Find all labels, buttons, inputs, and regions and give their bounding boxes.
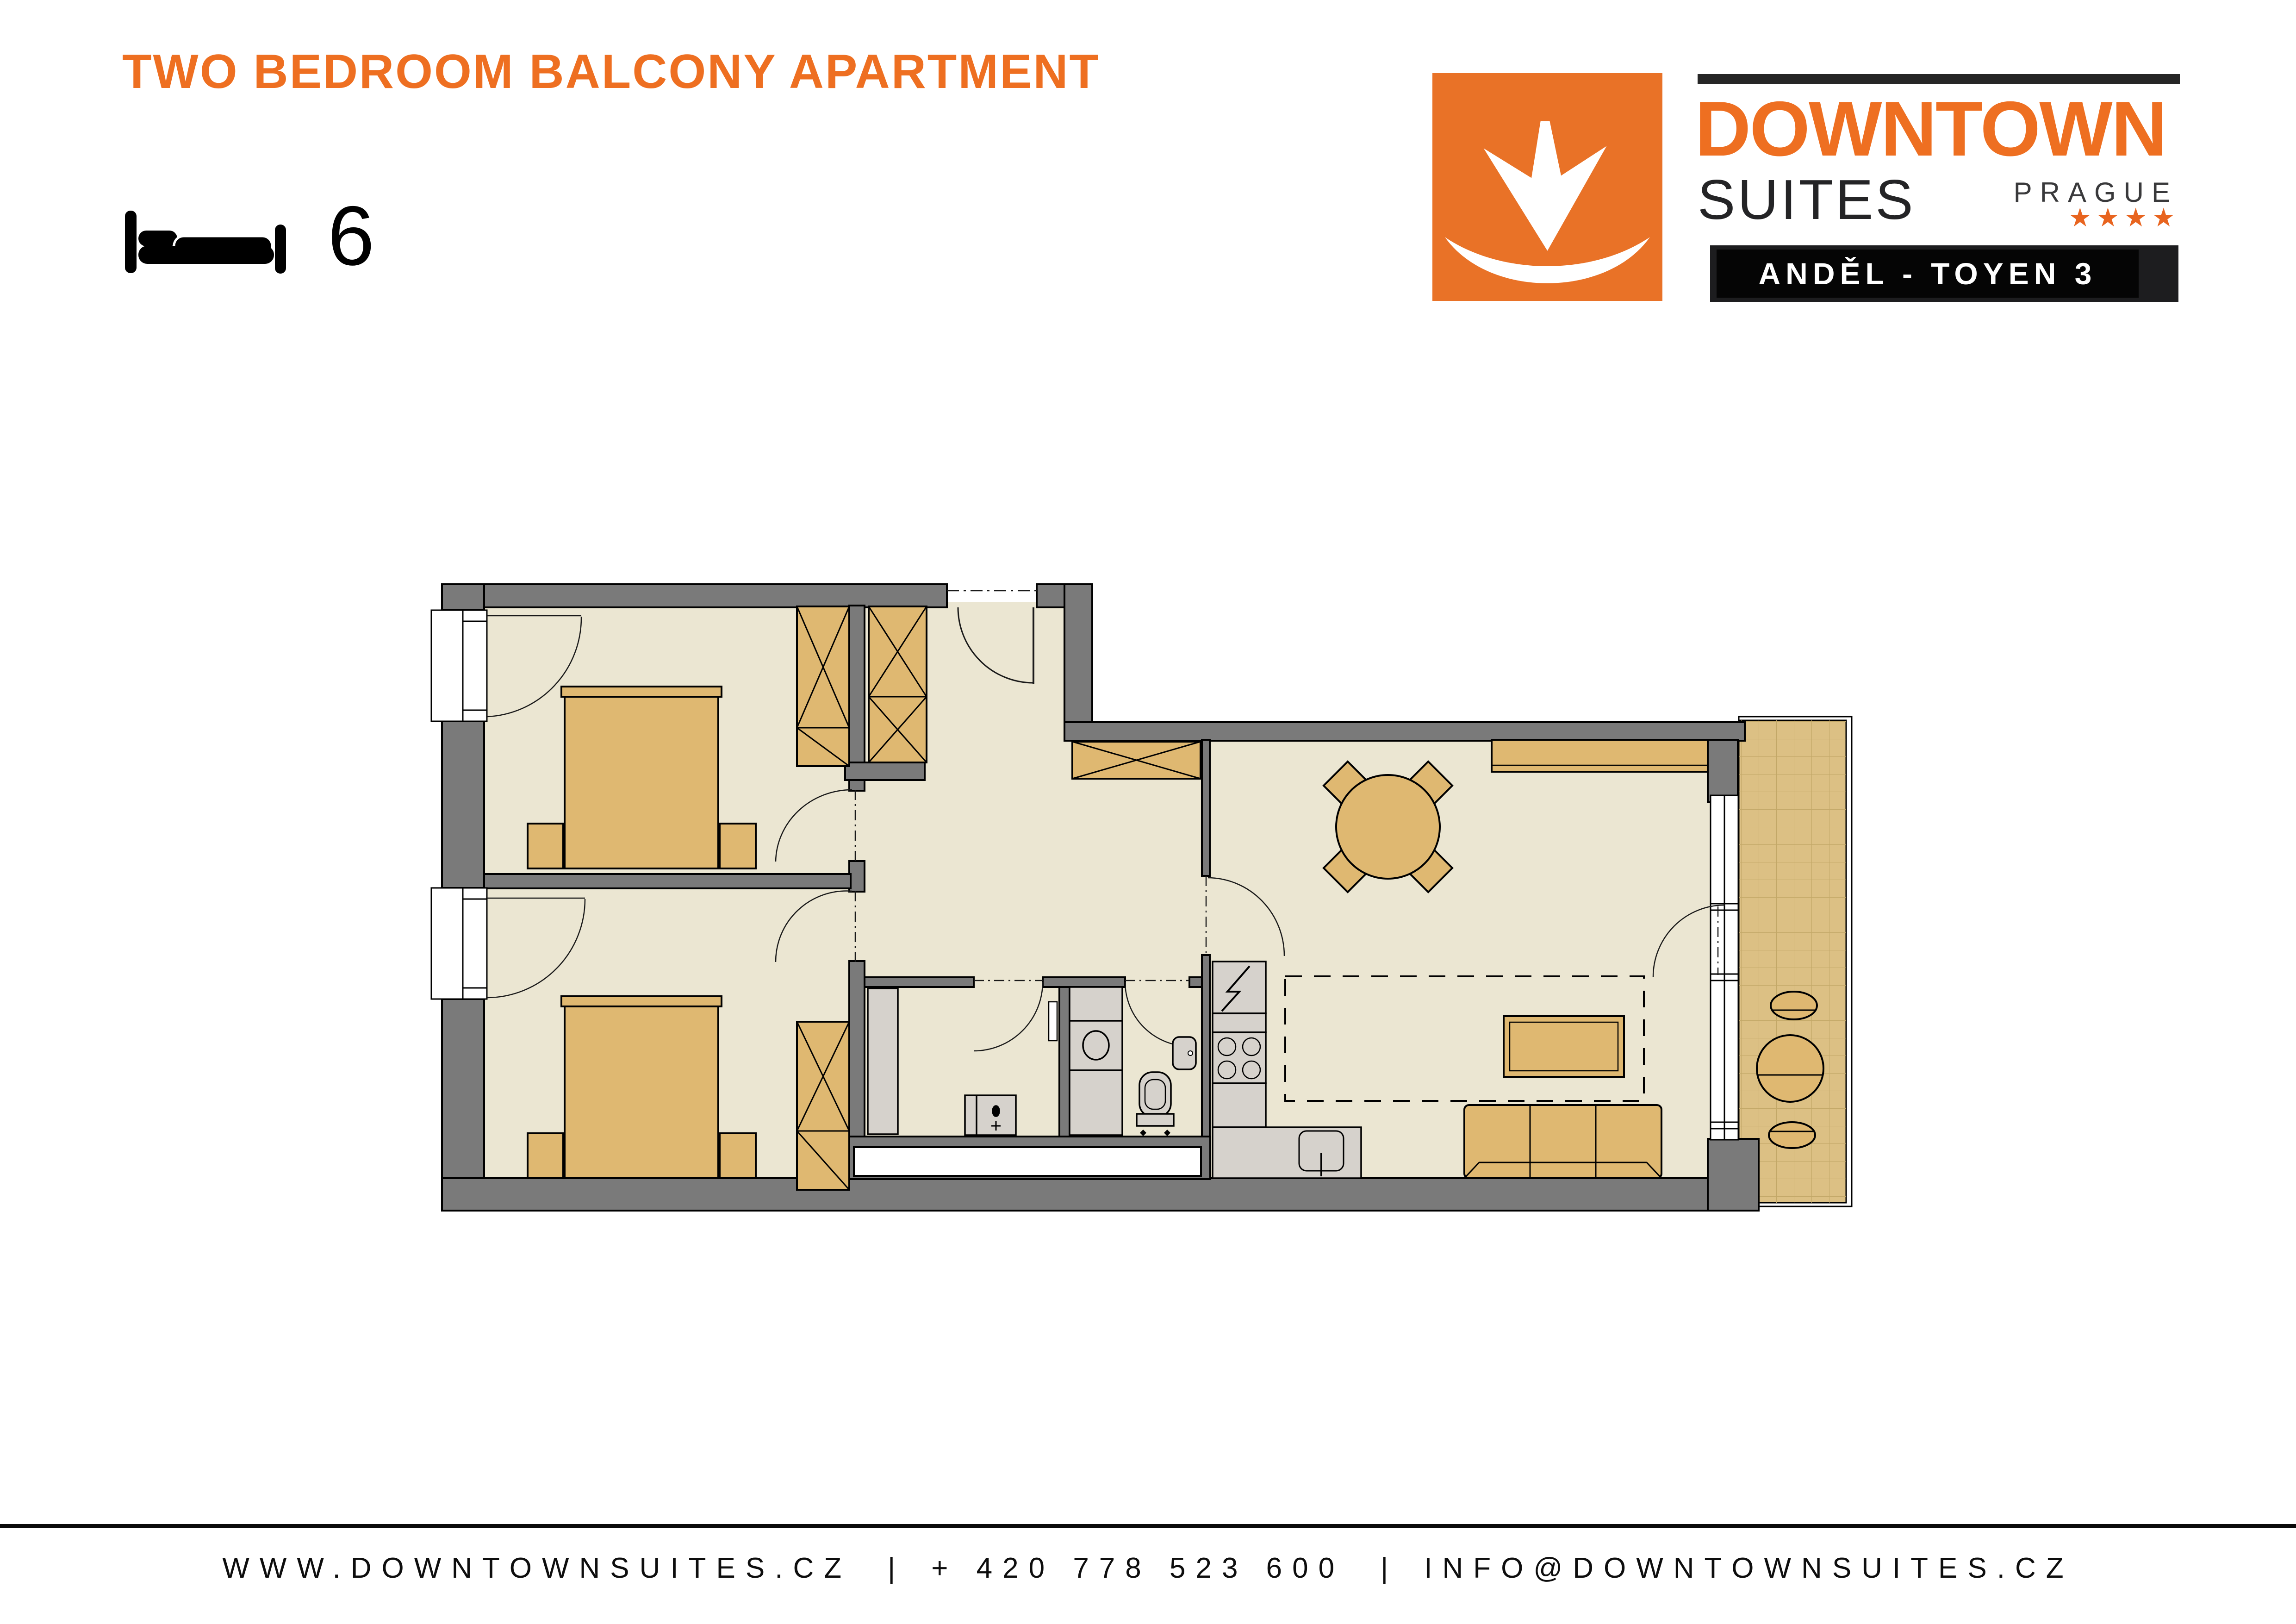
room-balcony bbox=[1739, 717, 1852, 1206]
balcony-chair-top bbox=[1771, 992, 1817, 1019]
logo: DOWNTOWN SUITES PRAGUE ★★★★ ANDĚL - TOYE… bbox=[1432, 73, 2180, 305]
footer-separator: | bbox=[888, 1552, 895, 1585]
double-bed bbox=[565, 697, 718, 868]
wall-niche bbox=[854, 1147, 1201, 1176]
footer-rule bbox=[0, 1524, 2296, 1528]
counter bbox=[1213, 1083, 1266, 1127]
bed-headboard bbox=[561, 996, 722, 1006]
electric-panel bbox=[1213, 962, 1266, 1013]
window-bedroom-1 bbox=[431, 610, 487, 721]
nightstand bbox=[528, 824, 563, 868]
nightstand bbox=[720, 1133, 756, 1178]
coffee-table bbox=[1504, 1016, 1624, 1077]
washer-column bbox=[1070, 987, 1122, 1135]
bed-count: 6 bbox=[328, 194, 374, 278]
footer: WWW.DOWNTOWNSUITES.CZ | + 420 778 523 60… bbox=[0, 1552, 2296, 1585]
location-badge-label: ANDĚL - TOYEN 3 bbox=[1759, 256, 2097, 291]
logo-brand: DOWNTOWN bbox=[1695, 90, 2166, 168]
logo-city: PRAGUE bbox=[2014, 179, 2178, 206]
footer-email: INFO@DOWNTOWNSUITES.CZ bbox=[1424, 1552, 2073, 1585]
toilet bbox=[1137, 1072, 1174, 1136]
room-bedroom-2 bbox=[528, 996, 849, 1190]
wardrobe bbox=[797, 606, 849, 766]
location-badge: ANDĚL - TOYEN 3 bbox=[1710, 245, 2178, 302]
window-bedroom-2 bbox=[431, 888, 487, 999]
counter bbox=[1213, 1013, 1266, 1032]
nightstand bbox=[528, 1133, 563, 1178]
footer-separator: | bbox=[1381, 1552, 1388, 1585]
bathroom-mirror bbox=[1049, 1002, 1057, 1041]
sideboard bbox=[1492, 740, 1708, 772]
logo-top-bar bbox=[1698, 74, 2180, 84]
downtown-arrow-swoosh-icon bbox=[1432, 73, 1662, 301]
bed-icon bbox=[125, 211, 287, 274]
balcony-chair-bottom bbox=[1769, 1122, 1815, 1148]
washing-machine bbox=[965, 1095, 1016, 1135]
brochure-page: TWO BEDROOM BALCONY APARTMENT 6 DOWNTOWN… bbox=[0, 0, 2296, 1624]
footer-phone: + 420 778 523 600 bbox=[931, 1552, 1344, 1585]
bed-headboard bbox=[561, 687, 722, 697]
bathroom-closet bbox=[868, 988, 898, 1134]
hand-basin bbox=[1173, 1037, 1196, 1069]
logo-square bbox=[1432, 73, 1662, 301]
window-balcony-french bbox=[1711, 795, 1738, 1140]
floorplan-svg bbox=[417, 556, 1898, 1250]
double-bed bbox=[565, 1006, 718, 1178]
dining-table bbox=[1336, 775, 1440, 879]
logo-brand-sub: SUITES bbox=[1698, 171, 1916, 228]
footer-website: WWW.DOWNTOWNSUITES.CZ bbox=[222, 1552, 852, 1585]
page-title: TWO BEDROOM BALCONY APARTMENT bbox=[122, 44, 1100, 100]
stove bbox=[1213, 1032, 1266, 1083]
balcony-table bbox=[1757, 1035, 1823, 1102]
hall-wardrobe-left bbox=[869, 606, 927, 762]
hall-wardrobe-top bbox=[1072, 742, 1201, 779]
logo-text-block: DOWNTOWN SUITES PRAGUE ★★★★ ANDĚL - TOYE… bbox=[1698, 73, 2180, 305]
dining-set bbox=[1324, 762, 1452, 892]
sofa bbox=[1464, 1105, 1661, 1178]
logo-stars: ★★★★ bbox=[2068, 205, 2180, 231]
wardrobe bbox=[797, 1022, 849, 1190]
nightstand bbox=[720, 824, 756, 868]
